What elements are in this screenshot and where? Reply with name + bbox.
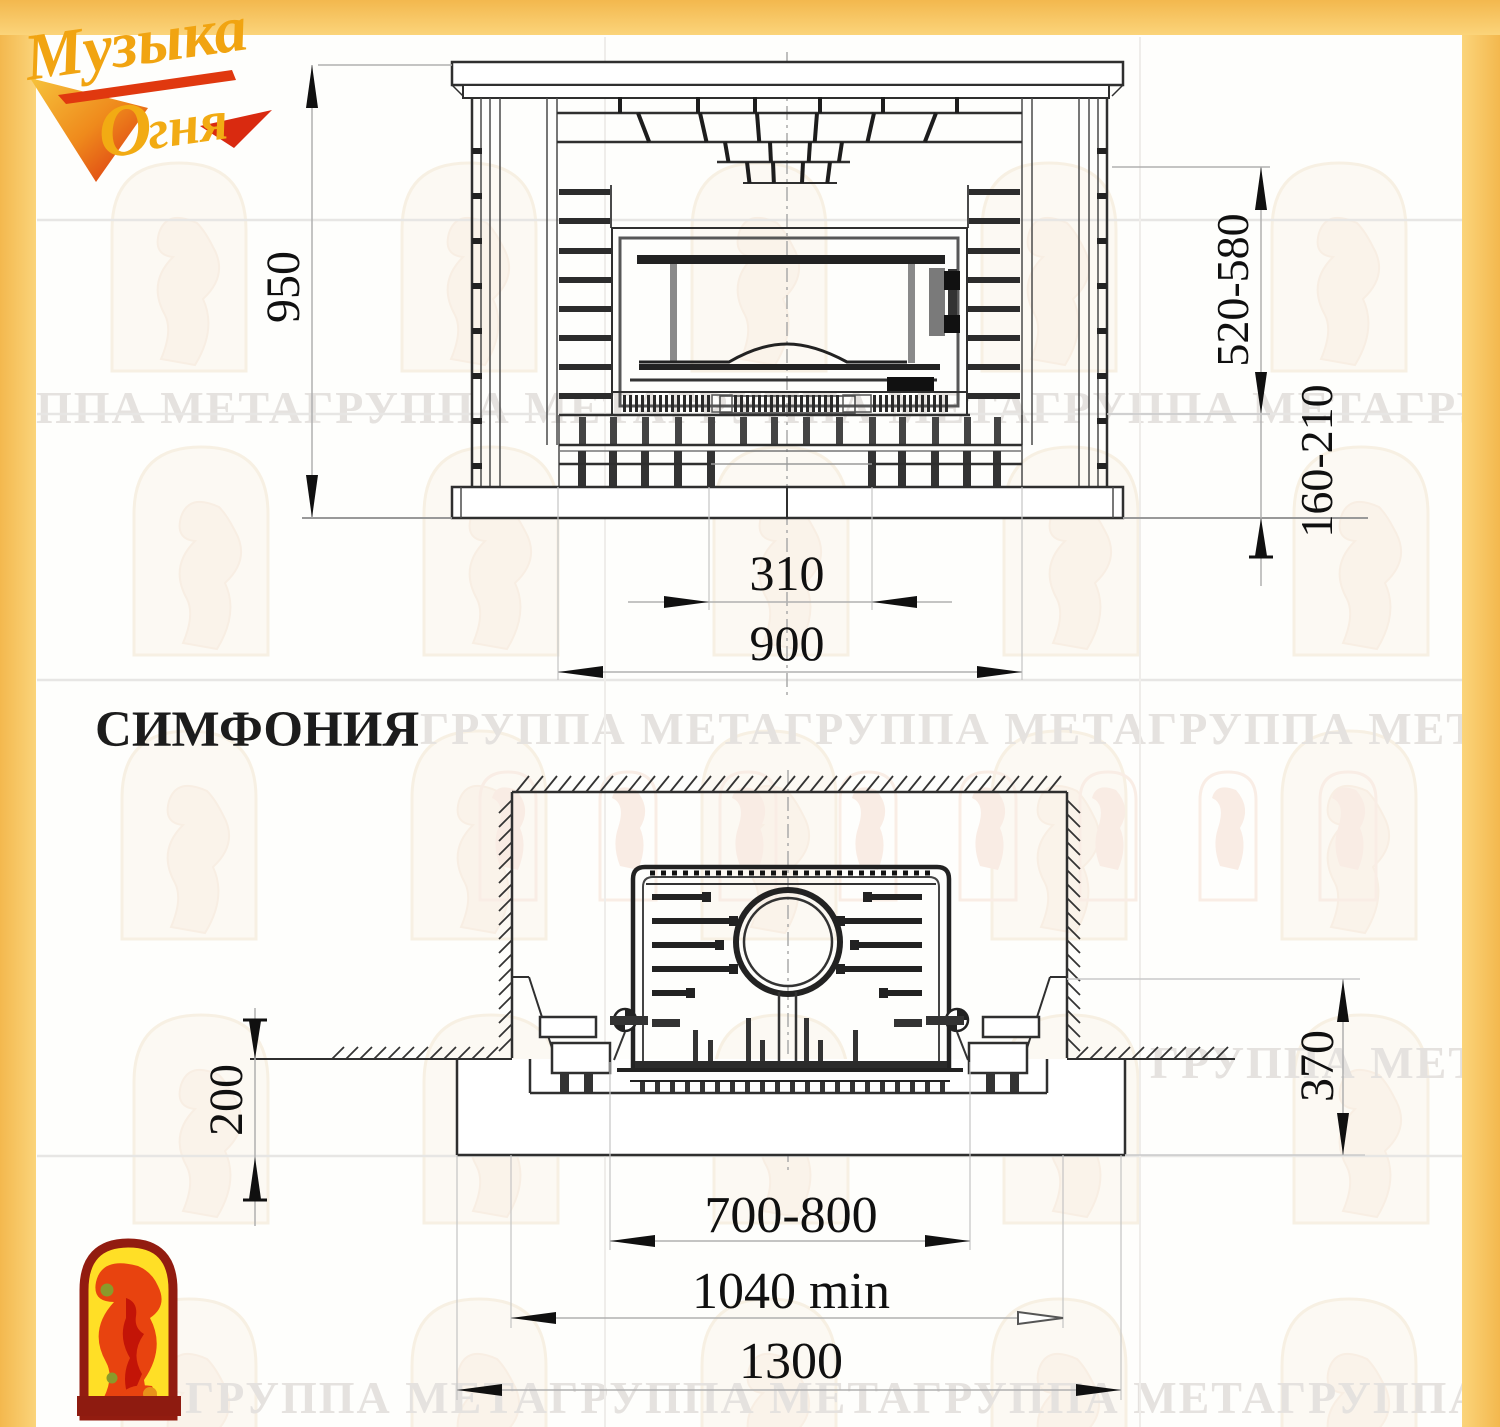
svg-text:1300: 1300 [739, 1333, 843, 1390]
svg-text:200: 200 [200, 1064, 253, 1136]
svg-text:700-800: 700-800 [704, 1187, 877, 1244]
svg-text:1040 min: 1040 min [692, 1263, 890, 1320]
svg-text:520-580: 520-580 [1207, 213, 1258, 366]
svg-text:ГРУППА МЕТАГРУППА МЕТАГРУППА М: ГРУППА МЕТАГРУППА МЕТАГРУППА МЕТАГРУППА … [420, 703, 1500, 754]
svg-text:310: 310 [750, 545, 825, 601]
svg-text:950: 950 [257, 251, 310, 323]
svg-text:370: 370 [1291, 1030, 1344, 1102]
svg-text:гня: гня [143, 89, 231, 162]
svg-text:900: 900 [750, 615, 825, 671]
svg-text:СИМФОНИЯ: СИМФОНИЯ [95, 702, 419, 758]
svg-text:160-210: 160-210 [1291, 384, 1342, 537]
